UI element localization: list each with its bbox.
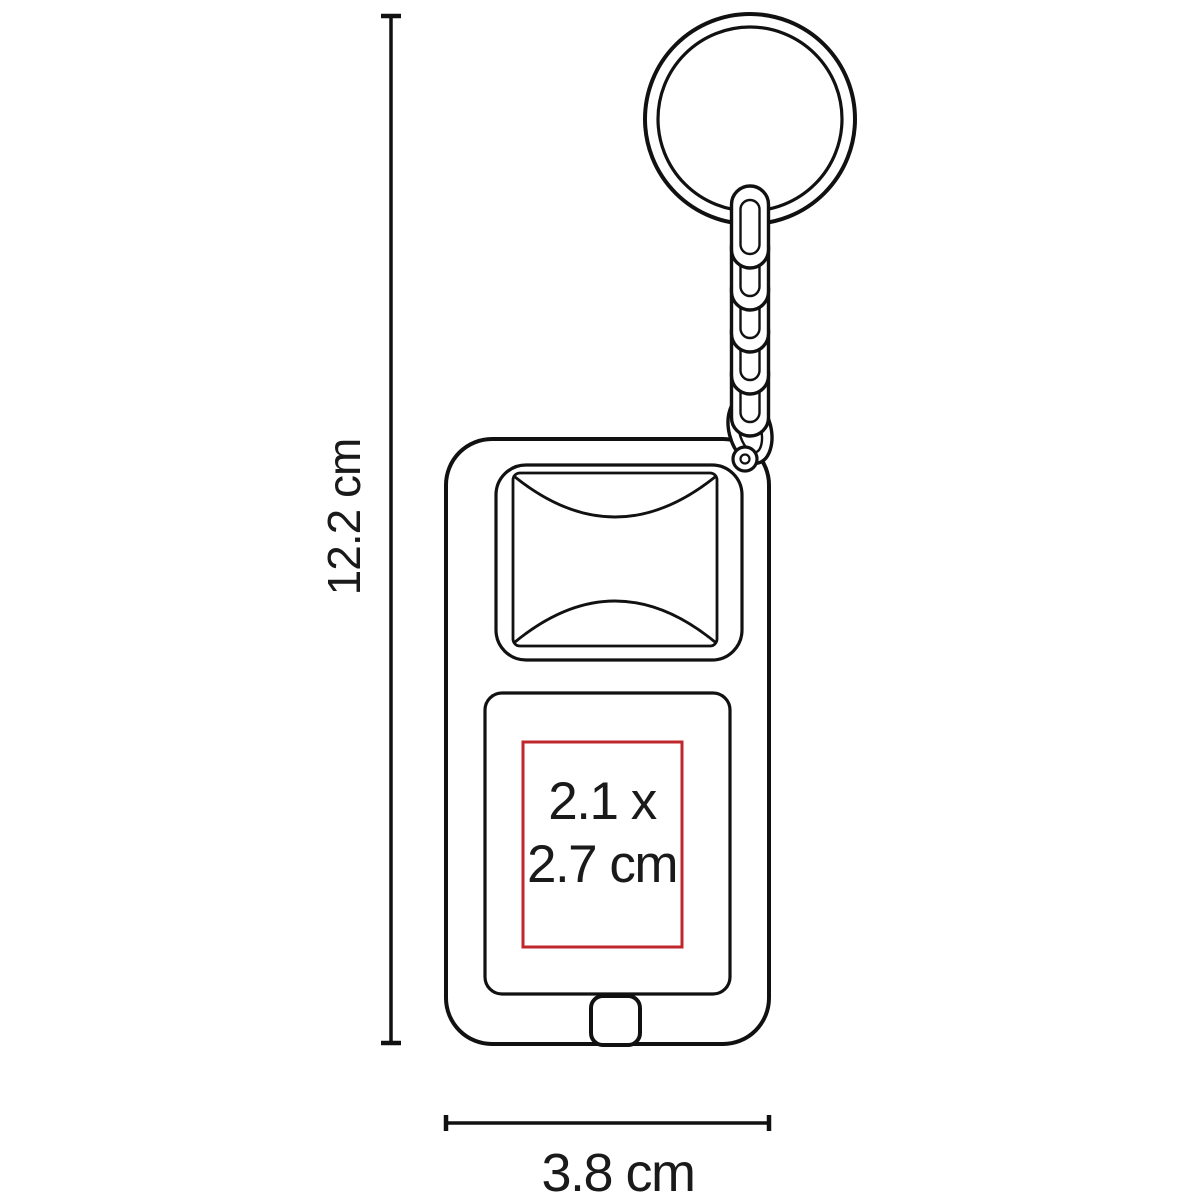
key-ring-inner-wire — [658, 27, 842, 211]
width-dimension — [446, 1115, 769, 1131]
keychain-line-art — [0, 0, 1200, 1200]
keychain-body — [446, 439, 769, 1045]
led-button — [591, 996, 640, 1045]
height-dimension — [381, 16, 401, 1043]
recess-inner-square — [513, 473, 717, 646]
chain — [721, 186, 778, 471]
print-area-label-line1: 2.1 x — [527, 770, 677, 833]
top-recess — [496, 465, 742, 660]
width-dimension-label: 3.8 cm — [541, 1142, 694, 1200]
eyelet-hole — [741, 455, 750, 464]
attachment-eyelet — [733, 447, 757, 471]
keychain-dimension-diagram: 12.2 cm 3.8 cm 2.1 x 2.7 cm — [0, 0, 1200, 1200]
chain-link-1 — [732, 186, 769, 268]
print-area-label: 2.1 x 2.7 cm — [527, 770, 677, 896]
print-area-label-line2: 2.7 cm — [527, 833, 677, 896]
chain-link-outer — [732, 186, 769, 268]
height-dimension-label: 12.2 cm — [317, 439, 371, 596]
